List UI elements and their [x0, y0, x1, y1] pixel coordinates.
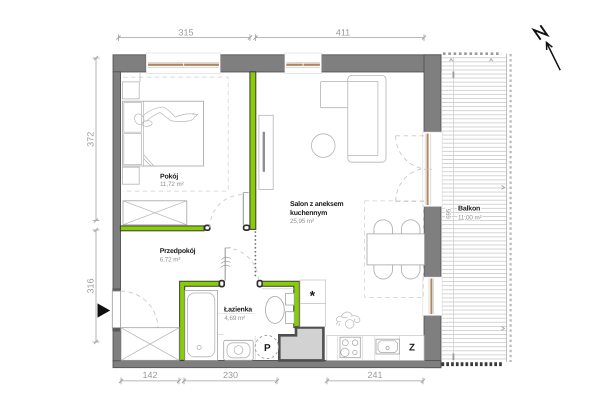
- svg-text:6,72 m²: 6,72 m²: [160, 257, 181, 264]
- svg-text:241: 241: [367, 370, 382, 380]
- svg-text:Z: Z: [409, 342, 415, 353]
- svg-text:Balkon: Balkon: [458, 205, 480, 213]
- svg-text:230: 230: [223, 370, 238, 380]
- svg-text:316: 316: [86, 278, 96, 293]
- svg-text:25,95 m²: 25,95 m²: [290, 218, 314, 225]
- svg-text:315: 315: [178, 28, 193, 38]
- svg-text:kuchennym: kuchennym: [290, 209, 327, 217]
- svg-text:Przedpokój: Przedpokój: [160, 247, 196, 255]
- svg-text:372: 372: [86, 132, 96, 147]
- svg-text:411: 411: [336, 28, 350, 38]
- svg-text:Pokój: Pokój: [160, 172, 178, 180]
- svg-text:Salon z aneksem: Salon z aneksem: [290, 200, 343, 208]
- svg-text:11,72 m²: 11,72 m²: [160, 181, 184, 188]
- svg-text:4,69 m²: 4,69 m²: [224, 315, 245, 322]
- svg-text:Łazienka: Łazienka: [224, 306, 252, 314]
- svg-text:*: *: [310, 287, 316, 303]
- svg-text:695: 695: [445, 208, 452, 219]
- svg-text:142: 142: [142, 370, 157, 380]
- svg-text:11,00 m²: 11,00 m²: [458, 215, 482, 222]
- svg-text:P: P: [264, 343, 271, 354]
